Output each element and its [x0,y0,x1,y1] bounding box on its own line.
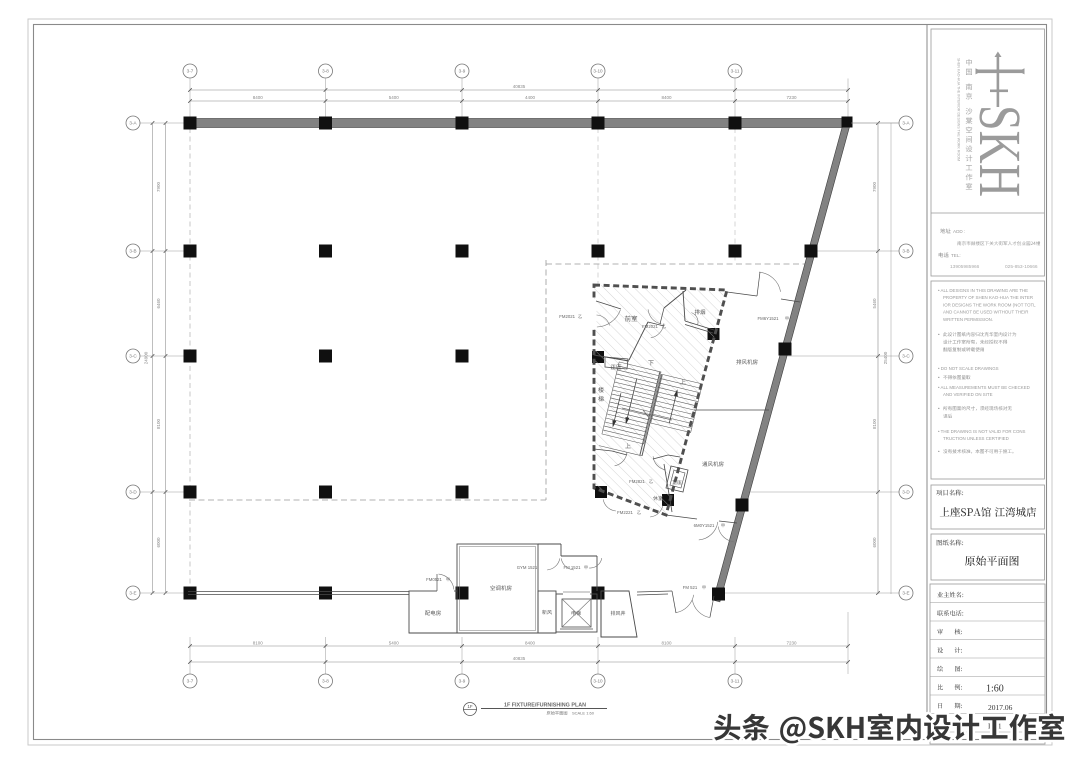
svg-text:PROPERTY OF SHEN KAO-HUA THE I: PROPERTY OF SHEN KAO-HUA THE INTER [943,295,1033,300]
svg-text:3-9: 3-9 [459,679,466,684]
svg-text:• ALL DESIGNS IN THIS DRAWING: • ALL DESIGNS IN THIS DRAWING ARE THE [938,288,1028,293]
svg-text:025-853-10666: 025-853-10666 [1005,264,1038,270]
svg-text:5460: 5460 [872,298,877,309]
svg-text:• DO NOT SCALE DRAWINGS: • DO NOT SCALE DRAWINGS [938,366,999,371]
svg-text:24900: 24900 [144,351,149,364]
svg-text:6000: 6000 [872,537,877,548]
svg-text:8100: 8100 [156,418,161,429]
svg-text:3-A: 3-A [902,121,910,126]
svg-text:3-10: 3-10 [593,679,603,684]
svg-text:FM0521: FM0521 [426,577,442,582]
svg-text:7230: 7230 [786,95,797,100]
svg-text:3-11: 3-11 [731,69,740,74]
svg-text:SHEN KAO-HUA THE INTERIOR DESI: SHEN KAO-HUA THE INTERIOR DESIGNS THE WO… [957,58,961,161]
svg-text:3-A: 3-A [129,121,137,126]
svg-text:ADD :: ADD : [953,229,965,234]
svg-text:FM2021: FM2021 [559,314,575,319]
svg-text:3-E: 3-E [129,591,136,596]
svg-text:13905985966: 13905985966 [950,264,980,270]
svg-text:5400: 5400 [389,641,400,646]
svg-text:3-B: 3-B [902,249,909,254]
svg-text:FM2221: FM2221 [617,510,633,515]
svg-text:3-8: 3-8 [322,69,329,74]
svg-text:3-11: 3-11 [731,679,740,684]
svg-text:6000: 6000 [156,537,161,548]
svg-text:3-7: 3-7 [187,679,194,684]
svg-text:WRITTEN PERMISSION.: WRITTEN PERMISSION. [943,317,993,322]
svg-text:40835: 40835 [513,84,526,89]
svg-text:8100: 8100 [253,641,264,646]
svg-text:5400: 5400 [389,95,400,100]
svg-text:FM 1521: FM 1521 [564,565,582,570]
svg-text:• THE DRAWING IS NOT VALID FOR: • THE DRAWING IS NOT VALID FOR CONS [938,429,1026,434]
svg-text:FM 521: FM 521 [683,585,698,590]
svg-text:8100: 8100 [872,418,877,429]
svg-text:3-10: 3-10 [593,69,603,74]
svg-text:40835: 40835 [513,656,526,661]
svg-text:3-D: 3-D [902,490,910,495]
svg-text:3-B: 3-B [129,249,136,254]
svg-text:3-9: 3-9 [459,69,466,74]
svg-text:6M0Y1521: 6M0Y1521 [694,523,715,528]
svg-text:3-D: 3-D [129,490,137,495]
svg-text:4400: 4400 [525,95,536,100]
svg-text:25400: 25400 [883,351,888,364]
svg-text:3-E: 3-E [902,591,909,596]
svg-text:FM2021: FM2021 [642,324,658,329]
svg-text:1F: 1F [467,704,473,709]
svg-text:FM6Y1521: FM6Y1521 [757,316,779,321]
svg-text:AND VERIFIED ON SITE: AND VERIFIED ON SITE [943,392,993,397]
svg-text:7230: 7230 [786,641,797,646]
svg-text:TEL:: TEL: [951,253,961,258]
svg-text:IOR DESIGNS THE WORK ROOM (NOT: IOR DESIGNS THE WORK ROOM (NOT TOTL [943,302,1036,307]
svg-text:6460: 6460 [156,298,161,309]
svg-text:GYM 1521: GYM 1521 [517,565,538,570]
svg-text:1:60: 1:60 [986,684,1004,695]
svg-text:3-8: 3-8 [322,679,329,684]
svg-text:8400: 8400 [661,95,672,100]
svg-text:8100: 8100 [661,641,672,646]
svg-text:SCALE 1:60: SCALE 1:60 [572,711,595,716]
svg-text:7900: 7900 [156,181,161,192]
svg-text:AND CANNOT BE USED WITHOUT THE: AND CANNOT BE USED WITHOUT THEIR [943,310,1028,315]
svg-text:7900: 7900 [872,181,877,192]
svg-text:FM2821: FM2821 [629,479,645,484]
svg-text:8400: 8400 [253,95,264,100]
svg-text:1F FIXTURE/FURNISHING PLAN: 1F FIXTURE/FURNISHING PLAN [504,703,586,709]
svg-text:• ALL MEASUREMENTS MUST BE CHE: • ALL MEASUREMENTS MUST BE CHECKED [938,385,1030,390]
svg-text:2017.06: 2017.06 [988,703,1013,712]
svg-text:TRUCTION UNLESS CERTIFIED: TRUCTION UNLESS CERTIFIED [943,436,1009,441]
svg-text:3-C: 3-C [902,354,910,359]
svg-text:8400: 8400 [525,641,536,646]
svg-text:3-7: 3-7 [187,69,194,74]
svg-text:3-C: 3-C [129,354,137,359]
